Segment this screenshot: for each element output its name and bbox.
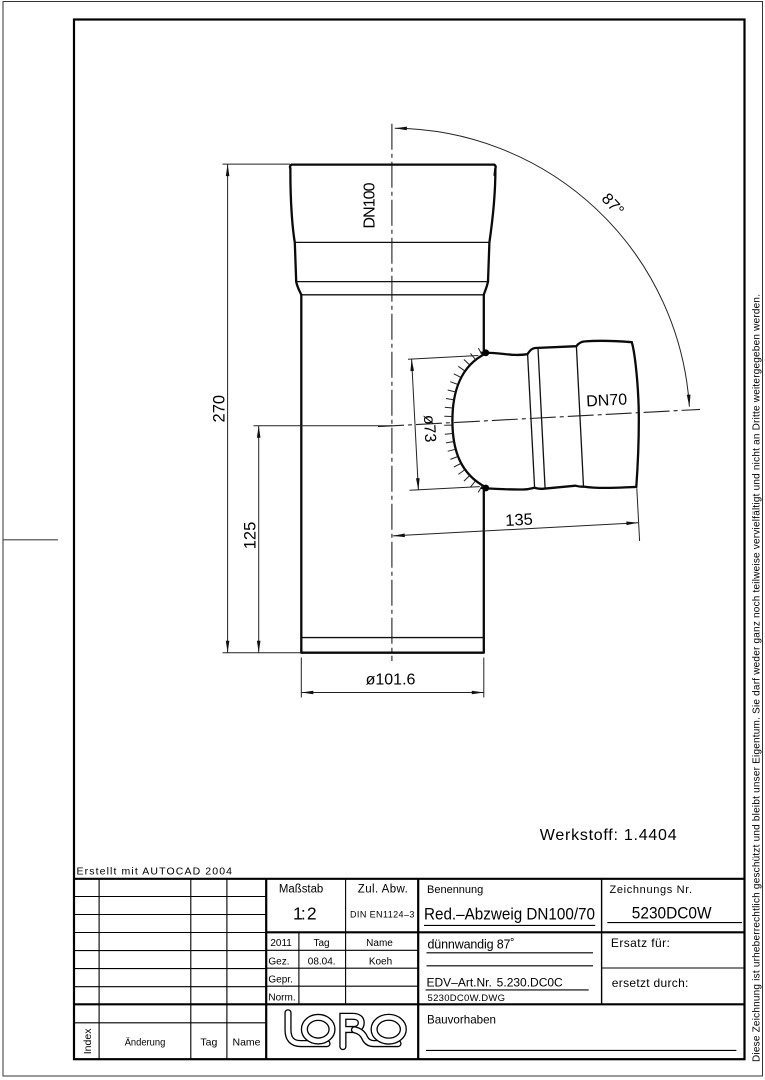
- svg-text:1: 2: 1: 2: [293, 904, 317, 924]
- svg-text:5230DC0W: 5230DC0W: [632, 904, 712, 922]
- svg-text:Index: Index: [82, 1028, 94, 1054]
- svg-text:ersetzt durch:: ersetzt durch:: [612, 976, 689, 990]
- svg-text:ø73: ø73: [420, 414, 438, 443]
- svg-text:270: 270: [210, 395, 228, 423]
- svg-text:Ersatz für:: Ersatz für:: [611, 936, 670, 950]
- svg-text:DN70: DN70: [586, 391, 628, 410]
- svg-text:ø101.6: ø101.6: [366, 671, 416, 688]
- svg-text:125: 125: [242, 522, 260, 550]
- svg-text:Benennung: Benennung: [427, 884, 483, 896]
- svg-text:Name: Name: [232, 1036, 260, 1048]
- svg-text:DIN EN1124–3: DIN EN1124–3: [350, 910, 414, 920]
- svg-text:5230DC0W.DWG: 5230DC0W.DWG: [428, 993, 506, 1004]
- svg-text:Gepr.: Gepr.: [268, 975, 292, 986]
- svg-text:Gez.: Gez.: [268, 957, 289, 968]
- svg-text:Tag: Tag: [200, 1036, 217, 1048]
- svg-text:Zeichnungs Nr.: Zeichnungs Nr.: [610, 884, 693, 896]
- svg-text:Änderung: Änderung: [125, 1036, 166, 1048]
- svg-text:08.04.: 08.04.: [308, 957, 336, 968]
- svg-text:2011: 2011: [270, 938, 292, 949]
- svg-text:Diese Zeichnung ist urheberrec: Diese Zeichnung ist urheberrechtlich ges…: [751, 294, 762, 1062]
- svg-text:EDV–Art.Nr. 5.230.DC0C: EDV–Art.Nr. 5.230.DC0C: [427, 975, 564, 989]
- svg-text:Zul. Abw.: Zul. Abw.: [358, 884, 408, 896]
- svg-text:Bauvorhaben: Bauvorhaben: [427, 1012, 496, 1026]
- svg-text:Red.–Abzweig DN100/70: Red.–Abzweig DN100/70: [424, 906, 595, 924]
- svg-text:Koeh: Koeh: [369, 957, 392, 968]
- svg-text:DN100: DN100: [361, 182, 378, 228]
- svg-text:Werkstoff: 1.4404: Werkstoff: 1.4404: [540, 827, 677, 844]
- svg-text:135: 135: [505, 511, 533, 530]
- svg-text:Tag: Tag: [313, 938, 329, 949]
- svg-text:Norm.: Norm.: [268, 993, 295, 1004]
- svg-text:Maßstab: Maßstab: [279, 884, 323, 896]
- svg-text:Name: Name: [366, 938, 393, 949]
- svg-text:Erstellt mit AUTOCAD 2004: Erstellt mit AUTOCAD 2004: [77, 866, 233, 878]
- svg-text:dünnwandig 87˚: dünnwandig 87˚: [428, 938, 515, 952]
